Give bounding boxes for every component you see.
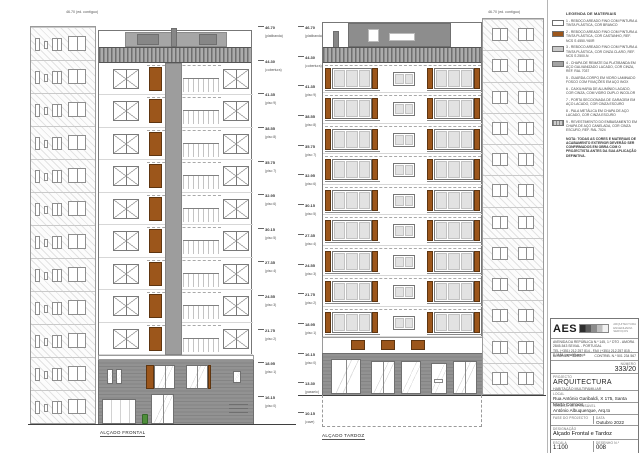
legend-item: 3 - REBOCO AREADO FINO COM PINTURA A TIN… (552, 45, 638, 58)
railing-line (427, 181, 482, 182)
adjacent-floor (483, 300, 543, 331)
adjacent-window (52, 71, 62, 84)
marker-item: 38.55(piso 8) (298, 105, 324, 127)
phase-date-row: FASE DO PROJECTO DATA Outubro 2022 (551, 415, 638, 426)
window-pane (334, 70, 345, 87)
level-tick (298, 115, 304, 116)
level-tick (298, 56, 304, 57)
level-value: 21.75 (305, 292, 315, 297)
window-pane (436, 70, 447, 87)
level-value: 46.70 (305, 25, 315, 30)
level-tick (298, 264, 304, 265)
swatch-spacer (552, 87, 564, 96)
brown-panel (351, 340, 365, 350)
marker-item: 16.15(piso 0) (298, 343, 324, 365)
balcony-railing (183, 273, 219, 287)
adjacent-window (518, 309, 534, 322)
corrugated-parapet (323, 47, 481, 63)
balcony-dashed-line (147, 195, 221, 196)
level-name: (piso 2) (265, 337, 296, 341)
adjacent-window (35, 335, 40, 348)
window-pane (436, 222, 447, 239)
window-pane (395, 318, 404, 328)
elevation-markers-rear: 46.70(platibanda)44.30(cobertura)41.35(p… (298, 16, 324, 424)
framed-window (332, 312, 372, 333)
adjacent-window (44, 41, 48, 49)
x-window (223, 264, 249, 284)
brown-panel (149, 164, 162, 188)
balcony-dashed-line (147, 130, 221, 131)
railing-line (325, 120, 380, 121)
adjacent-floor (31, 192, 95, 225)
balcony-railing (183, 208, 219, 222)
level-tick (298, 85, 304, 86)
balcony-railing (183, 143, 219, 157)
window-pane (448, 253, 459, 270)
material-swatch-white (552, 20, 564, 26)
marker-item: 13.30(passeio) (298, 372, 324, 394)
balcony-dashed-line (325, 65, 481, 66)
window-pane (334, 161, 345, 178)
level-tick (298, 353, 304, 354)
base-window (233, 371, 241, 383)
adjacent-window (52, 38, 62, 51)
adjacent-window (52, 203, 62, 216)
window-pane (346, 283, 357, 300)
local-row: LOCAL Rua António Garibaldi, X 175, Sant… (551, 391, 638, 403)
railing-line (325, 151, 380, 152)
date-value: Outubro 2022 (596, 420, 636, 426)
brown-panel (474, 251, 480, 272)
balcony-dashed-line (147, 97, 221, 98)
marker-item: 16.15(piso 0) (258, 386, 296, 408)
window-pane (436, 192, 447, 209)
window-pane (395, 287, 404, 297)
adjacent-window (52, 236, 62, 249)
aes-logo: AES (553, 323, 577, 335)
balcony-dashed-line (325, 156, 481, 157)
level-name: (piso 4) (265, 269, 296, 273)
adjacent-window (492, 372, 508, 385)
railing-line (427, 242, 482, 243)
framed-window (332, 159, 372, 180)
window-pane (395, 165, 404, 175)
x-window (223, 296, 249, 316)
window-pane (448, 192, 459, 209)
adjacent-floor (483, 207, 543, 238)
adjacent-window (68, 234, 86, 249)
x-window (223, 166, 249, 186)
adjacent-window (44, 74, 48, 82)
brown-panel (474, 129, 480, 150)
marker-item: 41.35(piso 9) (298, 75, 324, 97)
level-name: (platibanda) (265, 34, 296, 38)
adjacent-window (35, 38, 40, 51)
floor-row (323, 185, 483, 215)
adjacent-window (492, 247, 508, 260)
level-tick (258, 261, 264, 262)
storefront-glazing (453, 361, 477, 394)
entrance-door (151, 394, 174, 424)
marker-item: 32.95(piso 6) (298, 164, 324, 186)
brown-panel (474, 98, 480, 119)
adjacent-window (44, 239, 48, 247)
balcony-dashed-line (147, 325, 221, 326)
level-value: 18.95 (265, 361, 275, 366)
base-window (107, 369, 113, 384)
brown-panel (427, 220, 433, 241)
brown-panel (149, 67, 162, 91)
level-tick (258, 362, 264, 363)
window-pane (405, 287, 414, 297)
material-swatch-brown (552, 31, 564, 37)
brown-panel (474, 190, 480, 211)
legend-item-text: 2 - REBOCO AREADO FINO COM PINTURA A TIN… (566, 30, 638, 43)
legend-item-text: 1 - REBOCO AREADO FINO COM PINTURA A TIN… (566, 19, 638, 28)
adjacent-top-label: 46.70 (ed. contíguo) (66, 10, 98, 14)
window-pane (405, 226, 414, 236)
window-pane (436, 161, 447, 178)
x-window (223, 101, 249, 121)
adjacent-window (35, 269, 40, 282)
x-window (113, 166, 139, 186)
window-pane (334, 192, 345, 209)
balcony-dashed-line (147, 260, 221, 261)
brown-panel (325, 251, 331, 272)
adjacent-window (35, 170, 40, 183)
basement-outline (322, 395, 482, 427)
marker-item: 27.35(piso 4) (258, 251, 296, 273)
framed-window (332, 98, 372, 119)
level-tick (258, 194, 264, 195)
level-name: (piso 1) (265, 370, 296, 374)
window-pane (334, 131, 345, 148)
window-pane (359, 70, 370, 87)
marker-item: 10.15(cave) (298, 402, 324, 424)
rear-elevation: 46.70(platibanda)44.30(cobertura)41.35(p… (298, 10, 546, 445)
window-pane (461, 283, 472, 300)
fase-label: FASE DO PROJECTO (553, 416, 593, 420)
window-pane (461, 131, 472, 148)
railing-line (325, 334, 380, 335)
adjacent-window (68, 69, 86, 84)
brown-panel (325, 68, 331, 89)
window-pane (334, 314, 345, 331)
level-tick (298, 204, 304, 205)
framed-window (332, 251, 372, 272)
level-value: 32.95 (265, 193, 275, 198)
brown-panel (146, 365, 154, 389)
storefront-sign (434, 379, 443, 383)
roof-equipment (137, 34, 159, 45)
base-window (116, 369, 122, 384)
storefront-glazing (331, 359, 361, 394)
level-tick (258, 396, 264, 397)
x-window (113, 264, 139, 284)
legend-item: 1 - REBOCO AREADO FINO COM PINTURA A TIN… (552, 19, 638, 28)
material-swatch-lightgray (552, 46, 564, 52)
level-tick (258, 60, 264, 61)
balcony-railing (183, 78, 219, 92)
project-row: PROJECTO ARQUITECTURA HABITAÇÃO MULTIFAM… (551, 374, 638, 391)
legend-item: 6 - CAIXILHARIA DE ALUMÍNIO LACADO, COR … (552, 87, 638, 96)
adjacent-window (44, 272, 48, 280)
project-title: ARQUITECTURA (553, 379, 636, 387)
adjacent-window (492, 309, 508, 322)
level-value: 27.35 (305, 233, 315, 238)
framed-window (393, 163, 415, 177)
brown-panel (149, 99, 162, 123)
adjacent-floor (31, 390, 95, 423)
level-value: 38.55 (305, 114, 315, 119)
x-window (113, 69, 139, 89)
adjacent-top-label: 46.70 (ed. contíguo) (488, 10, 520, 14)
level-value: 46.70 (265, 25, 275, 30)
adjacent-floor (31, 27, 95, 60)
adjacent-window (518, 122, 534, 135)
adjacent-floor (31, 357, 95, 390)
adjacent-floor (31, 60, 95, 93)
level-value: 18.95 (305, 322, 315, 327)
marker-item: 35.75(piso 7) (258, 151, 296, 173)
balcony-dashed-line (325, 248, 481, 249)
x-window (113, 199, 139, 219)
adjacent-window (68, 300, 86, 315)
brown-panel (427, 281, 433, 302)
window-pane (461, 253, 472, 270)
brown-panel (372, 68, 378, 89)
adjacent-window (492, 341, 508, 354)
level-value: 38.55 (265, 126, 275, 131)
railing-line (325, 90, 380, 91)
brown-panel (427, 251, 433, 272)
logo-tag-lines: ARQUITECTURAENGENHARIASERVIÇOS (613, 323, 636, 334)
material-swatch-gray (552, 61, 564, 67)
brown-panel (474, 220, 480, 241)
level-name: (piso 8) (265, 135, 296, 139)
window-pane (359, 253, 370, 270)
base-window (186, 365, 208, 389)
storefront-glazing (371, 361, 395, 394)
level-value: 21.75 (265, 328, 275, 333)
marker-item: 24.55(piso 3) (298, 254, 324, 276)
adjacent-window (35, 236, 40, 249)
legend-item-text: 4 - CHAPA DE REMATE DA PLATIBANDA EM AÇO… (566, 61, 638, 74)
adjacent-building-left (30, 26, 96, 424)
adjacent-window (68, 135, 86, 150)
entrance-plant (142, 414, 148, 424)
adjacent-window (68, 102, 86, 117)
logo-gradient-bar (579, 324, 609, 333)
level-tick (258, 228, 264, 229)
marker-item: 27.35(piso 4) (298, 224, 324, 246)
level-name: (piso 6) (265, 202, 296, 206)
window-pane (346, 253, 357, 270)
window-pane (461, 70, 472, 87)
level-value: 10.15 (305, 411, 315, 416)
elevation-markers-front: 46.70(platibanda)44.30(cobertura)41.35(p… (258, 16, 296, 408)
brown-panel (372, 312, 378, 333)
adjacent-floor (31, 291, 95, 324)
level-value: 27.35 (265, 260, 275, 265)
adjacent-window (492, 153, 508, 166)
level-tick (258, 93, 264, 94)
window-pane (359, 222, 370, 239)
designation-row: DESIGNAÇÃO Alçado Frontal e Tardoz (551, 426, 638, 440)
materials-legend: LEGENDA DE MATERIAIS 1 - REBOCO AREADO F… (552, 12, 638, 158)
marker-item: 18.95(piso 1) (258, 352, 296, 374)
adjacent-window (68, 267, 86, 282)
adjacent-window (518, 153, 534, 166)
adjacent-window (492, 122, 508, 135)
window-pane (405, 318, 414, 328)
marker-item: 46.70(platibanda) (258, 16, 296, 38)
window-pane (405, 165, 414, 175)
brown-panel (325, 220, 331, 241)
registry-right: CONTRIB. N.º 501 234 567 (594, 354, 636, 359)
rear-elevation-caption: ALÇADO TARDOZ (322, 433, 365, 440)
level-name: (piso 5) (265, 236, 296, 240)
window-pane (436, 131, 447, 148)
adjacent-window (492, 91, 508, 104)
core-column (165, 63, 182, 355)
window-pane (346, 131, 357, 148)
garage-door (102, 399, 136, 424)
adjacent-window (492, 216, 508, 229)
adjacent-window (44, 305, 48, 313)
scale-value: 1:100 (553, 445, 593, 452)
window-pane (405, 104, 414, 114)
floor-row (323, 246, 483, 276)
x-window (223, 69, 249, 89)
window-pane (359, 314, 370, 331)
adjacent-window (44, 371, 48, 379)
framed-window (434, 281, 474, 302)
railing-line (325, 273, 380, 274)
brown-panel (427, 312, 433, 333)
marker-item: 24.55(piso 3) (258, 285, 296, 307)
adjacent-window (68, 366, 86, 381)
level-name: (piso 0) (265, 404, 296, 408)
window-pane (359, 161, 370, 178)
framed-window (434, 159, 474, 180)
marker-item: 38.55(piso 8) (258, 117, 296, 139)
level-value: 41.35 (265, 92, 275, 97)
x-window (223, 231, 249, 251)
balcony-railing (183, 175, 219, 189)
railing-line (427, 334, 482, 335)
framed-window (393, 102, 415, 116)
brown-panel (372, 190, 378, 211)
sheet-number: 008 (596, 445, 636, 452)
level-tick (258, 329, 264, 330)
adjacent-floor (31, 159, 95, 192)
balcony-dashed-line (147, 162, 221, 163)
adjacent-window (68, 36, 86, 51)
balcony-dashed-line (325, 126, 481, 127)
adjacent-floor (31, 93, 95, 126)
ventilation-slats (229, 404, 248, 413)
level-name: (piso 7) (265, 169, 296, 173)
adjacent-floor (483, 113, 543, 144)
mezzanine-band (322, 337, 484, 354)
adjacent-floor (31, 324, 95, 357)
level-value: 41.35 (305, 84, 315, 89)
brown-panel (149, 262, 162, 286)
railing-line (427, 303, 482, 304)
level-value: 30.15 (265, 227, 275, 232)
level-tick (258, 295, 264, 296)
ground-line (28, 424, 296, 425)
level-value: 16.15 (305, 352, 315, 357)
marker-item: 44.30(cobertura) (298, 46, 324, 68)
brown-panel (372, 281, 378, 302)
balcony-dashed-line (325, 217, 481, 218)
level-value: 16.15 (265, 395, 275, 400)
level-value: 24.55 (305, 263, 315, 268)
level-tick (298, 234, 304, 235)
marker-item: 35.75(piso 7) (298, 135, 324, 157)
legend-item-text: 8 - PALA METÁLICA EM CHAPA DE AÇO LACADO… (566, 109, 638, 118)
adjacent-window (52, 335, 62, 348)
front-elevation: 46.70 (ed. contíguo) 46.70(pl (28, 10, 298, 445)
level-name: (cobertura) (265, 68, 296, 72)
framed-window (434, 220, 474, 241)
window-pane (405, 196, 414, 206)
balcony-dashed-line (325, 278, 481, 279)
base-band (98, 355, 254, 360)
adjacent-window (68, 399, 86, 414)
level-value: 32.95 (305, 173, 315, 178)
framed-window (393, 255, 415, 269)
adjacent-floor (483, 82, 543, 113)
balcony-railing (183, 240, 219, 254)
window-pane (359, 100, 370, 117)
brown-panel (149, 229, 162, 253)
window-pane (405, 135, 414, 145)
level-tick (258, 161, 264, 162)
floor-row (323, 276, 483, 306)
brown-panel (372, 159, 378, 180)
window-pane (436, 253, 447, 270)
legend-note: NOTA: TODAS AS CORES E MATERIAIS DE ACAB… (566, 137, 638, 158)
brown-panel (372, 129, 378, 150)
registry-left: ALVARÁ N.º 23452 (553, 354, 582, 359)
adjacent-window (44, 338, 48, 346)
framed-window (434, 251, 474, 272)
window-pane (334, 283, 345, 300)
marker-item: 21.75(piso 2) (258, 319, 296, 341)
window-pane (436, 283, 447, 300)
brown-panel (149, 294, 162, 318)
front-elevation-caption: ALÇADO FRONTAL (100, 430, 145, 437)
x-window (223, 134, 249, 154)
window-pane (461, 161, 472, 178)
adjacent-window (492, 28, 508, 41)
framed-window (332, 190, 372, 211)
window-pane (395, 196, 404, 206)
legend-title: LEGENDA DE MATERIAIS (566, 12, 638, 16)
penthouse-opening (389, 33, 415, 41)
brown-panel (474, 281, 480, 302)
storefront-glazing (401, 361, 421, 394)
window-pane (448, 131, 459, 148)
adjacent-window (52, 269, 62, 282)
level-tick (298, 145, 304, 146)
window-pane (448, 161, 459, 178)
floor-row (323, 124, 483, 154)
adjacent-window (68, 201, 86, 216)
